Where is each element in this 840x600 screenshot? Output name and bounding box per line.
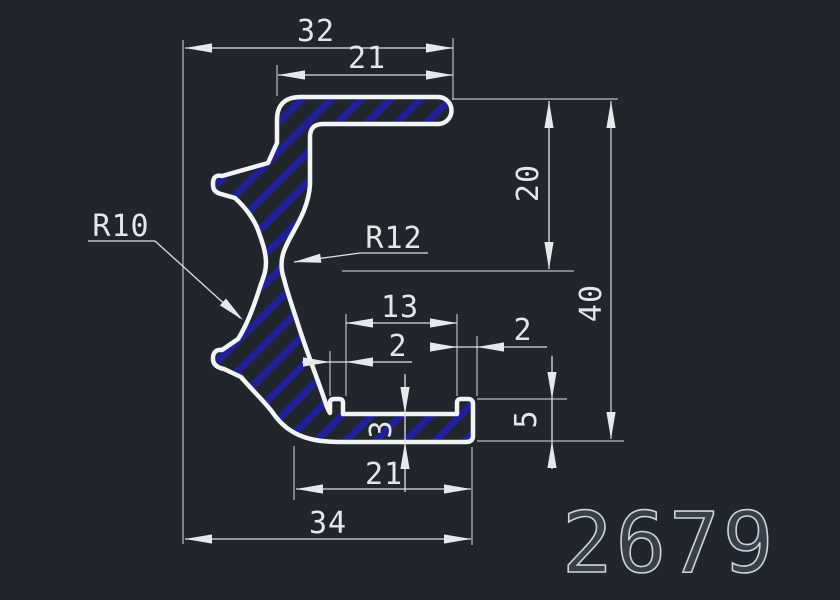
- dim-arrow: [400, 387, 409, 414]
- cad-drawing-stage: 32 21 20 40 13: [0, 0, 840, 600]
- dim-lip-height-5: 5: [509, 356, 557, 469]
- dim-arrow: [444, 484, 471, 493]
- dim-overall-height-40: 40: [574, 101, 616, 439]
- dim-arrow: [544, 242, 553, 269]
- dim-arrow: [346, 318, 373, 327]
- dim-arrow: [185, 43, 212, 52]
- dim-arrow: [430, 318, 457, 327]
- dim-upper-height-20: 20: [511, 101, 554, 269]
- dim-right-lip-2: 2: [430, 313, 547, 352]
- dim-text-base-thickness: 3: [364, 419, 399, 438]
- dim-arrow: [547, 441, 556, 468]
- part-number: 2679: [562, 494, 776, 592]
- leader-r12: R12: [293, 221, 428, 267]
- dim-arrow: [606, 412, 615, 439]
- profile-outline: [213, 97, 473, 442]
- dim-arrow: [477, 342, 504, 351]
- dim-text-top-flange: 21: [348, 41, 386, 76]
- dim-text-base-inner: 21: [365, 457, 403, 492]
- dim-text-top-overall: 32: [297, 14, 335, 49]
- dim-arrow: [426, 43, 453, 52]
- dim-arrow: [278, 70, 305, 79]
- dim-text-base-overall: 34: [309, 506, 347, 541]
- radius-label-r12: R12: [365, 221, 422, 256]
- dim-arrow: [606, 101, 615, 128]
- dim-top-overall-32: 32: [185, 14, 453, 53]
- dim-arrow: [346, 357, 373, 366]
- dim-text-left-lip: 2: [388, 329, 407, 364]
- dim-arrow: [303, 357, 330, 366]
- dim-base-overall-34: 34: [185, 506, 471, 544]
- dim-left-lip-2: 2: [302, 329, 412, 367]
- dim-text-channel: 13: [381, 290, 419, 325]
- cad-canvas: 32 21 20 40 13: [0, 0, 840, 600]
- leader-arrow: [220, 299, 246, 324]
- leader-arrow: [293, 254, 321, 267]
- dim-text-overall-height: 40: [574, 284, 609, 322]
- dim-arrow: [296, 484, 323, 493]
- leader-r10: R10: [88, 209, 246, 323]
- dim-base-inner-21: 21: [296, 457, 471, 494]
- dim-arrow: [547, 372, 556, 399]
- dim-channel-13: 13: [346, 290, 457, 328]
- dim-text-right-lip: 2: [513, 313, 532, 348]
- dim-arrow: [426, 70, 453, 79]
- radius-label-r10: R10: [92, 209, 149, 244]
- dim-arrow: [430, 342, 457, 351]
- dim-text-upper-height: 20: [511, 164, 546, 202]
- dim-arrow: [444, 534, 471, 543]
- dim-arrow: [185, 534, 212, 543]
- dim-arrow: [544, 101, 553, 128]
- dim-text-lip-height: 5: [509, 409, 544, 428]
